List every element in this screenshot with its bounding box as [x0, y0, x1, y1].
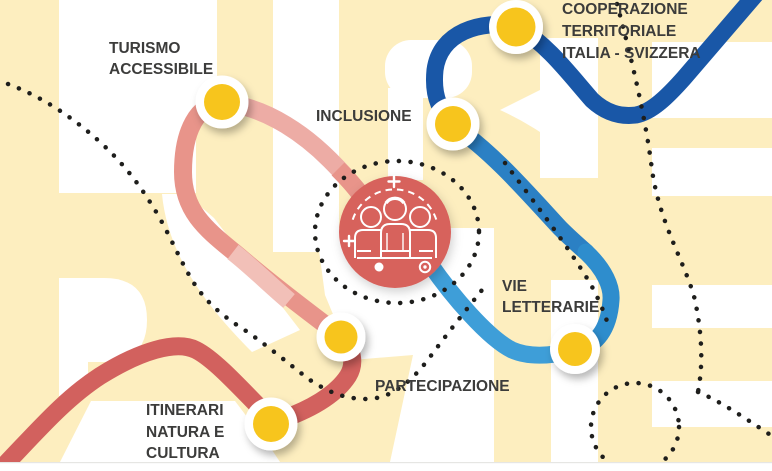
svg-text:TURISMO: TURISMO — [109, 40, 180, 57]
svg-text:VIE: VIE — [502, 278, 527, 295]
svg-text:ACCESSIBILE: ACCESSIBILE — [109, 61, 213, 78]
svg-text:LETTERARIE: LETTERARIE — [502, 299, 599, 316]
svg-text:CULTURA: CULTURA — [146, 445, 220, 462]
svg-text:NATURA E: NATURA E — [146, 424, 224, 441]
svg-text:TERRITORIALE: TERRITORIALE — [562, 23, 676, 40]
svg-text:PARTECIPAZIONE: PARTECIPAZIONE — [375, 378, 510, 395]
svg-text:COOPERAZIONE: COOPERAZIONE — [562, 1, 688, 18]
svg-text:INCLUSIONE: INCLUSIONE — [316, 108, 412, 125]
svg-text:ITINERARI: ITINERARI — [146, 402, 224, 419]
svg-text:ITALIA - SVIZZERA: ITALIA - SVIZZERA — [562, 45, 701, 62]
